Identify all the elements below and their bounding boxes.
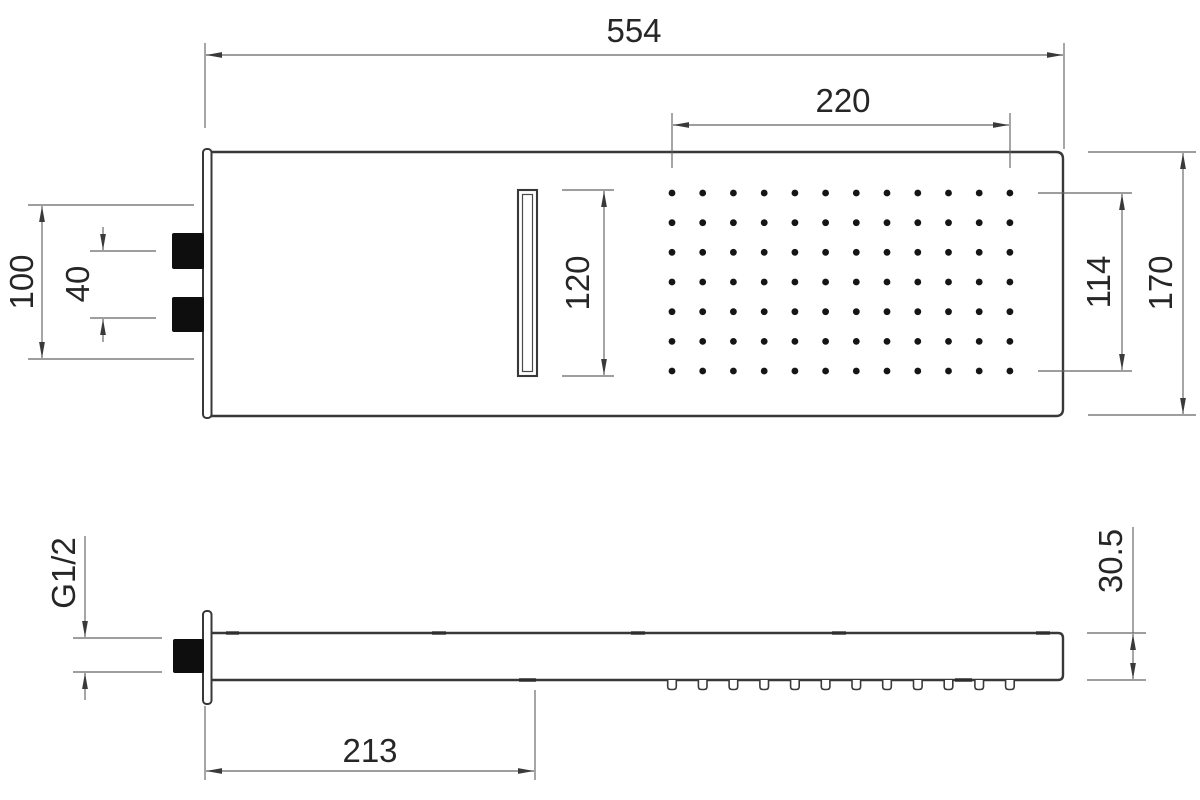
nozzle-dot bbox=[822, 279, 829, 286]
dim-overall-height-label: 170 bbox=[1142, 255, 1179, 310]
side-nozzle bbox=[668, 680, 677, 690]
nozzle-dot bbox=[945, 219, 952, 226]
nozzle-dot bbox=[761, 249, 768, 256]
nozzle-dot bbox=[976, 338, 983, 345]
nozzle-dot bbox=[1007, 338, 1014, 345]
nozzle-dot bbox=[730, 368, 737, 375]
nozzle-dot bbox=[853, 190, 860, 197]
nozzle-dot bbox=[699, 368, 706, 375]
nozzle-dot bbox=[914, 219, 921, 226]
nozzle-dot bbox=[976, 368, 983, 375]
nozzle-dot bbox=[1007, 249, 1014, 256]
nozzle-dot bbox=[730, 308, 737, 315]
dim-port-spacing-label: 40 bbox=[59, 266, 96, 303]
nozzle-dot bbox=[914, 249, 921, 256]
nozzle-dot bbox=[853, 249, 860, 256]
nozzle-dot bbox=[914, 279, 921, 286]
nozzle-dot bbox=[976, 308, 983, 315]
nozzle-dot bbox=[822, 190, 829, 197]
nozzle-dot bbox=[945, 279, 952, 286]
side-nozzle bbox=[729, 680, 738, 690]
side-nozzle bbox=[791, 680, 800, 690]
side-nozzle bbox=[975, 680, 984, 690]
nozzle-dot bbox=[699, 308, 706, 315]
nozzle-dot bbox=[792, 368, 799, 375]
nozzle-dot bbox=[730, 219, 737, 226]
nozzle-dot bbox=[945, 338, 952, 345]
nozzle-dot bbox=[976, 279, 983, 286]
dim-thread-size: G1/2 bbox=[45, 536, 162, 700]
nozzle-dot bbox=[884, 279, 891, 286]
dim-spray-field-width-label: 220 bbox=[815, 82, 870, 119]
nozzle-dot bbox=[669, 279, 676, 286]
dim-slot-height-label: 120 bbox=[559, 255, 596, 310]
front-inlet-port-lower bbox=[172, 297, 204, 332]
nozzle-dot bbox=[669, 338, 676, 345]
nozzle-dot bbox=[699, 190, 706, 197]
dim-spray-field-height-label: 114 bbox=[1080, 256, 1117, 309]
nozzle-dot bbox=[853, 279, 860, 286]
nozzle-dot bbox=[761, 338, 768, 345]
dim-body-thickness-label: 30.5 bbox=[1092, 529, 1129, 593]
nozzle-dot bbox=[699, 338, 706, 345]
nozzle-dot bbox=[945, 368, 952, 375]
nozzle-dot bbox=[669, 219, 676, 226]
nozzle-dot bbox=[792, 249, 799, 256]
nozzle-dot bbox=[945, 308, 952, 315]
nozzle-dot bbox=[669, 249, 676, 256]
side-nozzle bbox=[944, 680, 953, 690]
nozzle-dot bbox=[822, 249, 829, 256]
drawing-svg: 554 220 120 114 170 bbox=[0, 0, 1200, 800]
side-nozzle bbox=[883, 680, 892, 690]
nozzle-dot bbox=[761, 190, 768, 197]
nozzle-dot bbox=[853, 219, 860, 226]
dim-overall-width: 554 bbox=[205, 12, 1064, 149]
dim-port-spacing: 40 bbox=[59, 227, 156, 342]
dim-mount-span-label: 100 bbox=[3, 254, 40, 309]
nozzle-dot bbox=[853, 368, 860, 375]
technical-drawing-canvas: 554 220 120 114 170 bbox=[0, 0, 1200, 800]
nozzle-dot bbox=[1007, 279, 1014, 286]
waterfall-slot-inner bbox=[523, 195, 533, 372]
nozzle-dot bbox=[792, 190, 799, 197]
nozzle-dot bbox=[669, 190, 676, 197]
side-inlet-port bbox=[173, 639, 204, 673]
nozzle-dot bbox=[914, 368, 921, 375]
nozzle-dot bbox=[914, 190, 921, 197]
side-body-outline bbox=[211, 633, 1063, 680]
side-nozzle bbox=[852, 680, 861, 690]
nozzle-dot bbox=[884, 219, 891, 226]
nozzle-dot bbox=[884, 249, 891, 256]
front-view bbox=[172, 149, 1063, 418]
nozzle-dot bbox=[822, 308, 829, 315]
nozzle-dot bbox=[1007, 368, 1014, 375]
nozzle-dot bbox=[792, 338, 799, 345]
side-nozzle bbox=[760, 680, 769, 690]
nozzle-dot bbox=[699, 219, 706, 226]
dim-arm-length: 213 bbox=[205, 690, 535, 780]
nozzle-dot bbox=[669, 308, 676, 315]
nozzle-dot bbox=[1007, 308, 1014, 315]
nozzle-dot bbox=[822, 368, 829, 375]
front-body-outline bbox=[211, 152, 1063, 416]
nozzle-dot bbox=[1007, 219, 1014, 226]
front-mount-plate bbox=[203, 149, 212, 418]
side-nozzle bbox=[698, 680, 707, 690]
nozzle-dot bbox=[730, 279, 737, 286]
nozzle-dot bbox=[699, 249, 706, 256]
dim-mount-span: 100 bbox=[3, 205, 194, 359]
nozzle-dot bbox=[884, 190, 891, 197]
nozzle-dot bbox=[699, 279, 706, 286]
nozzle-dot bbox=[761, 368, 768, 375]
nozzle-dot bbox=[761, 219, 768, 226]
side-nozzle bbox=[821, 680, 830, 690]
front-inlet-port-upper bbox=[172, 233, 204, 269]
nozzle-dot bbox=[853, 308, 860, 315]
dim-body-thickness: 30.5 bbox=[1087, 527, 1146, 680]
nozzle-dot bbox=[945, 190, 952, 197]
dim-overall-width-label: 554 bbox=[606, 12, 661, 49]
nozzle-dot bbox=[730, 190, 737, 197]
nozzle-dot bbox=[792, 308, 799, 315]
dim-thread-size-label: G1/2 bbox=[45, 537, 82, 609]
nozzle-dot bbox=[792, 219, 799, 226]
nozzle-dot bbox=[884, 308, 891, 315]
nozzle-dot bbox=[914, 308, 921, 315]
nozzle-dot bbox=[884, 368, 891, 375]
nozzle-dot bbox=[976, 219, 983, 226]
nozzle-dot bbox=[730, 249, 737, 256]
nozzle-dot bbox=[976, 190, 983, 197]
nozzle-dot bbox=[730, 338, 737, 345]
side-nozzle bbox=[914, 680, 923, 690]
nozzle-dot bbox=[1007, 190, 1014, 197]
nozzle-dot bbox=[822, 338, 829, 345]
nozzle-dot bbox=[792, 279, 799, 286]
dim-arm-length-label: 213 bbox=[342, 732, 397, 769]
side-view bbox=[173, 611, 1063, 704]
nozzle-dot bbox=[945, 249, 952, 256]
nozzle-dot bbox=[976, 249, 983, 256]
nozzle-dot bbox=[853, 338, 860, 345]
nozzle-dot bbox=[669, 368, 676, 375]
nozzle-dot bbox=[761, 279, 768, 286]
nozzle-dot bbox=[761, 308, 768, 315]
nozzle-dot bbox=[884, 338, 891, 345]
nozzle-dot bbox=[914, 338, 921, 345]
side-nozzle bbox=[1006, 680, 1015, 690]
nozzle-dot bbox=[822, 219, 829, 226]
side-mount-plate bbox=[203, 611, 212, 704]
